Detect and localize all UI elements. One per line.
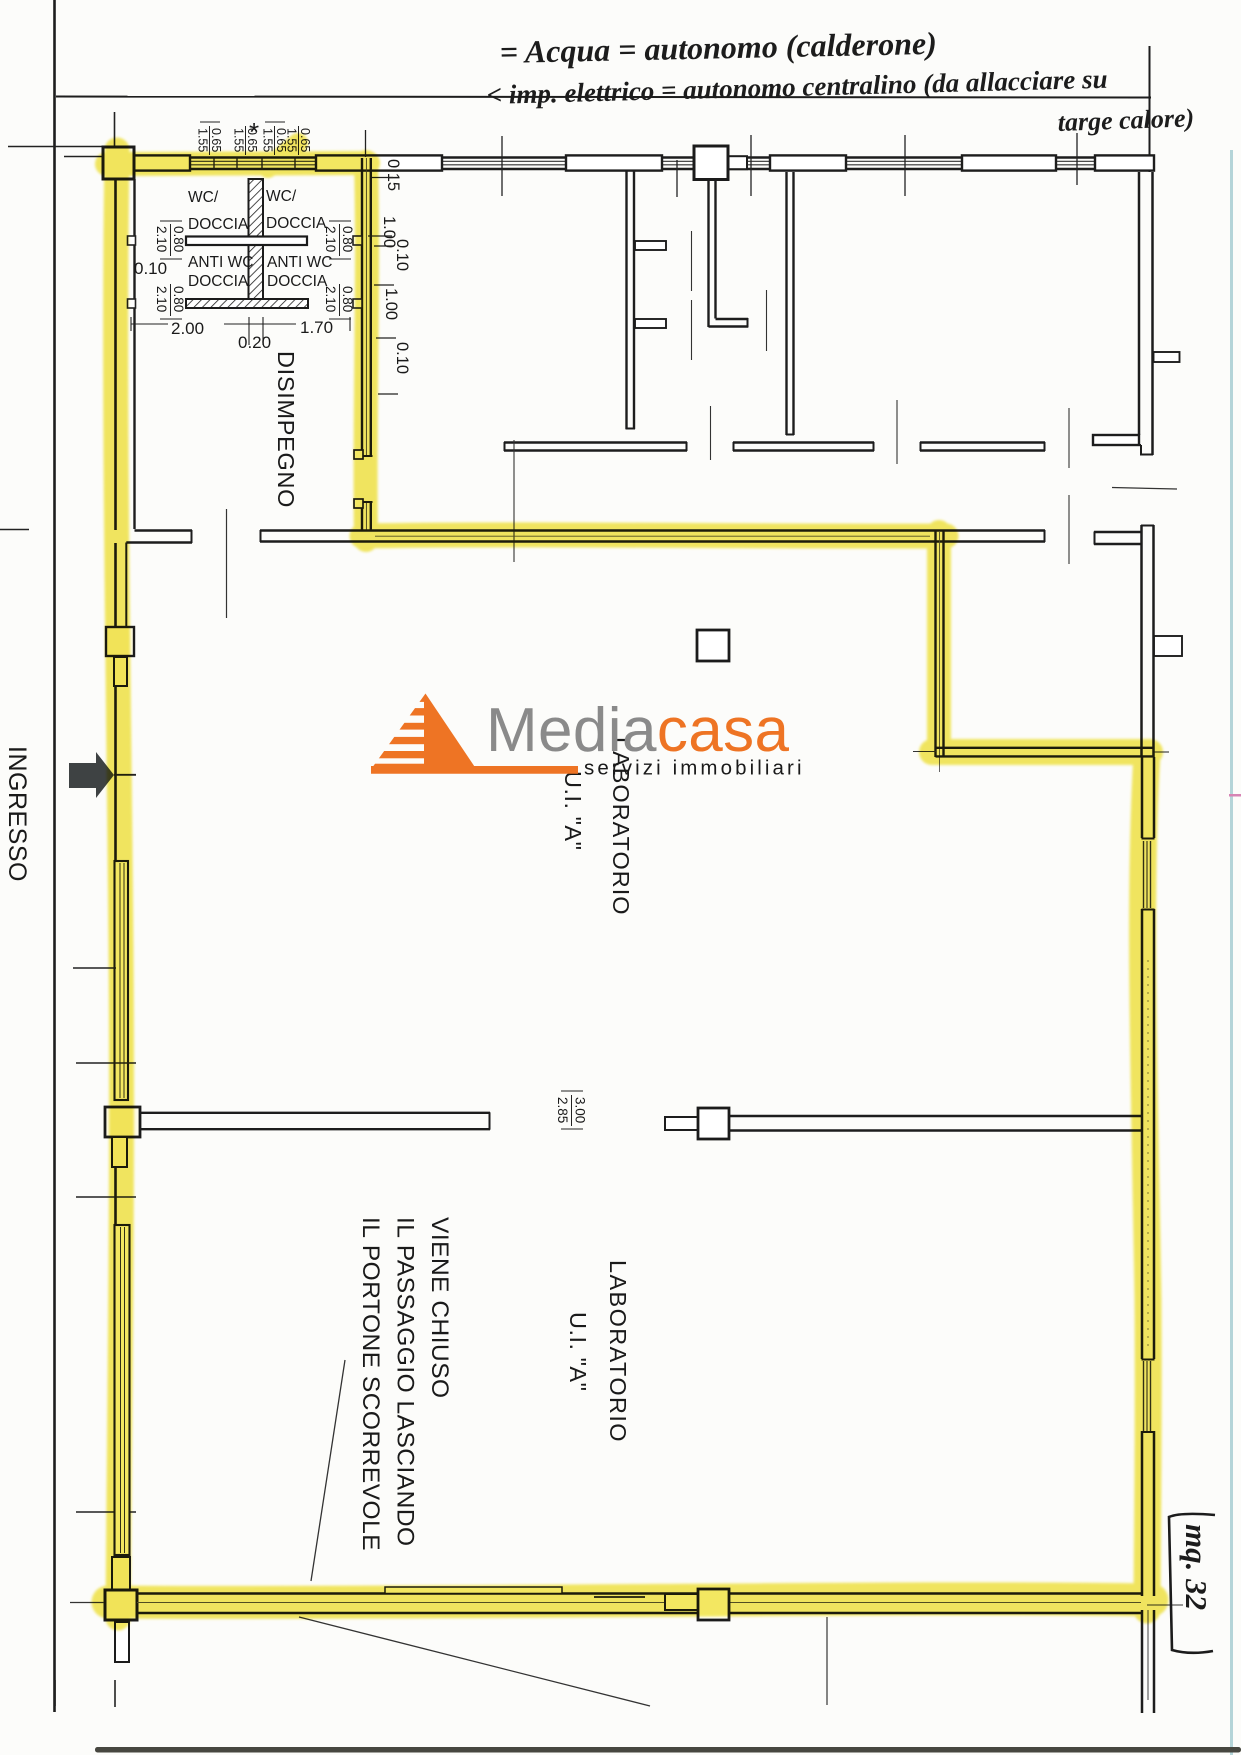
svg-text:*: * <box>249 117 259 147</box>
svg-text:LABORATORIO: LABORATORIO <box>605 1260 631 1443</box>
svg-text:0.80: 0.80 <box>171 286 186 312</box>
svg-text:1.55: 1.55 <box>196 128 210 152</box>
svg-text:DOCCIA: DOCCIA <box>188 216 249 233</box>
svg-text:Mediacasa: Mediacasa <box>486 696 790 765</box>
svg-text:ANTI WC: ANTI WC <box>267 254 332 271</box>
svg-text:2.10: 2.10 <box>323 286 338 312</box>
svg-text:1.70: 1.70 <box>300 318 333 337</box>
svg-text:ANTI WC: ANTI WC <box>188 254 253 271</box>
svg-text:DOCCIA: DOCCIA <box>266 215 327 232</box>
svg-text:0.10: 0.10 <box>393 239 411 271</box>
svg-text:0.10: 0.10 <box>393 342 411 374</box>
svg-text:= Acqua = autonomo (calderone): = Acqua = autonomo (calderone) <box>499 25 937 70</box>
svg-text:< imp. elettrico = autonomo ce: < imp. elettrico = autonomo centralino (… <box>486 64 1108 110</box>
svg-text:3.00: 3.00 <box>573 1097 588 1123</box>
svg-text:1.00: 1.00 <box>382 288 400 320</box>
svg-text:U.I. "A": U.I. "A" <box>565 1312 591 1391</box>
svg-text:DOCCIA: DOCCIA <box>267 273 328 290</box>
svg-text:2.85: 2.85 <box>555 1097 570 1123</box>
svg-text:WC/: WC/ <box>266 188 297 205</box>
svg-text:2.10: 2.10 <box>154 286 169 312</box>
svg-text:WC/: WC/ <box>188 189 219 206</box>
svg-text:DOCCIA: DOCCIA <box>188 273 249 290</box>
svg-text:0.80: 0.80 <box>340 286 355 312</box>
svg-text:VIENE CHIUSO: VIENE CHIUSO <box>426 1217 453 1399</box>
svg-text:mq. 32: mq. 32 <box>1179 1524 1214 1610</box>
svg-text:0.15: 0.15 <box>384 159 402 191</box>
svg-text:0.80: 0.80 <box>171 226 186 252</box>
svg-text:2.10: 2.10 <box>154 226 169 252</box>
svg-text:servizi immobiliari: servizi immobiliari <box>584 757 805 780</box>
svg-text:INGRESSO: INGRESSO <box>3 746 31 882</box>
svg-text:2.10: 2.10 <box>323 226 338 252</box>
svg-text:targe calore): targe calore) <box>1057 103 1194 137</box>
svg-text:U.I. "A": U.I. "A" <box>560 771 586 850</box>
svg-text:0.80: 0.80 <box>340 226 355 252</box>
svg-text:1.55: 1.55 <box>232 128 246 152</box>
svg-text:0.20: 0.20 <box>238 333 271 352</box>
svg-text:0.10: 0.10 <box>134 259 167 278</box>
svg-text:IL PASSAGGIO LASCIANDO: IL PASSAGGIO LASCIANDO <box>392 1217 419 1547</box>
svg-text:2.00: 2.00 <box>171 319 204 338</box>
svg-text:DISIMPEGNO: DISIMPEGNO <box>273 351 299 508</box>
svg-text:1.55: 1.55 <box>261 128 275 152</box>
svg-text:IL PORTONE SCORREVOLE: IL PORTONE SCORREVOLE <box>357 1217 384 1551</box>
svg-text:0.65: 0.65 <box>209 128 223 152</box>
